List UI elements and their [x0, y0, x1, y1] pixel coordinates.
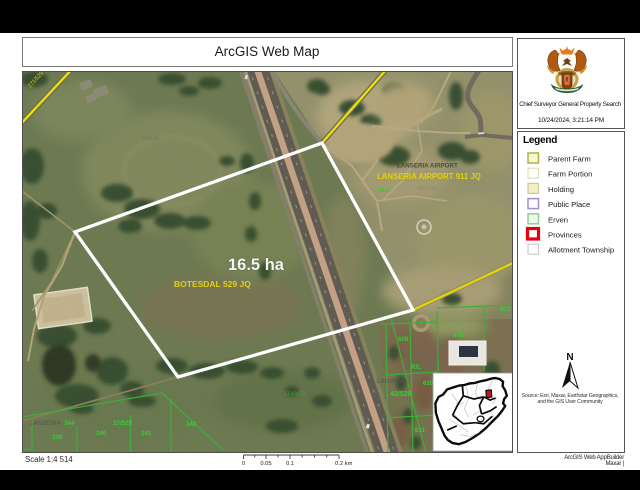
svg-text:0.2 km: 0.2 km — [335, 461, 353, 467]
svg-text:27/529: 27/529 — [113, 420, 132, 427]
svg-text:340: 340 — [96, 430, 107, 437]
svg-text:LANSERIA AIRPORT 911 JQ: LANSERIA AIRPORT 911 JQ — [377, 172, 481, 181]
svg-text:42/529: 42/529 — [390, 391, 412, 398]
svg-text:0.1: 0.1 — [286, 461, 294, 467]
svg-text:916: 916 — [378, 187, 389, 194]
svg-text:341: 341 — [141, 430, 152, 437]
svg-text:Public Place: Public Place — [548, 200, 590, 209]
svg-text:Parent Farm: Parent Farm — [548, 155, 591, 164]
svg-text:608: 608 — [398, 336, 409, 343]
svg-text:Provinces: Provinces — [548, 231, 582, 240]
svg-text:344: 344 — [64, 420, 75, 427]
svg-text:LANSERIA: LANSERIA — [377, 378, 408, 385]
svg-text:LANSERIA: LANSERIA — [30, 420, 61, 427]
svg-text:0.05: 0.05 — [260, 461, 271, 467]
svg-text:611: 611 — [415, 427, 426, 434]
svg-text:Holding: Holding — [548, 185, 574, 194]
svg-text:115/529: 115/529 — [284, 391, 306, 397]
svg-text:16.5 ha: 16.5 ha — [228, 256, 285, 274]
svg-text:Farm Portion: Farm Portion — [548, 170, 592, 179]
svg-text:613: 613 — [500, 306, 511, 313]
svg-text:618: 618 — [453, 332, 464, 339]
svg-text:15/529: 15/529 — [142, 136, 159, 142]
svg-text:N: N — [566, 352, 573, 363]
svg-text:610: 610 — [423, 380, 434, 387]
svg-text:R/L: R/L — [411, 364, 421, 371]
svg-text:Allotment Township: Allotment Township — [548, 246, 614, 255]
svg-text:410/911: 410/911 — [417, 186, 436, 192]
svg-text:0: 0 — [242, 461, 245, 467]
svg-text:Erven: Erven — [548, 215, 568, 224]
svg-text:BOTESDAL 529 JQ: BOTESDAL 529 JQ — [174, 279, 251, 289]
svg-text:LANSERIA AIRPORT: LANSERIA AIRPORT — [397, 163, 458, 170]
svg-text:339: 339 — [52, 434, 63, 441]
svg-text:342: 342 — [186, 421, 197, 428]
